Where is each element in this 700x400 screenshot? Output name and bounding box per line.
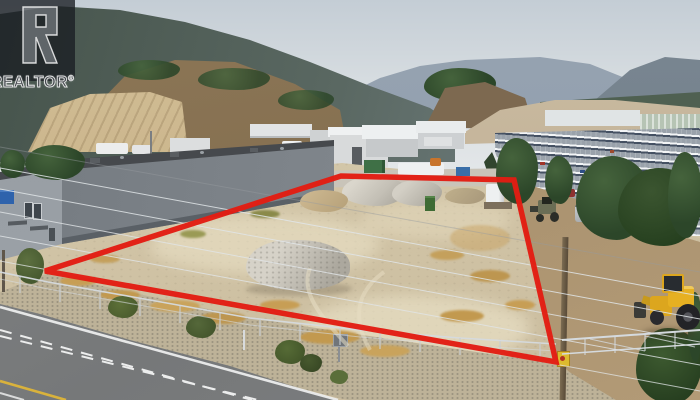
rooftop-hvac-unit (90, 158, 100, 163)
parked-car-red (610, 150, 614, 153)
rooftop-hvac-unit (250, 148, 258, 152)
dry-grass (300, 330, 360, 344)
registered-trademark-symbol: ® (68, 74, 74, 83)
loader-front-tire (650, 310, 664, 325)
utility-trailer (424, 137, 452, 146)
pole-warning-sign (557, 351, 570, 367)
dry-grass (440, 310, 484, 322)
dry-grass (90, 255, 120, 263)
greenhouse-rows (640, 114, 700, 130)
building-window (33, 203, 42, 220)
warehouse-roof-row (250, 124, 312, 138)
loader-cab (662, 274, 684, 293)
conifer-cluster (278, 90, 334, 110)
tree-edge (668, 152, 700, 238)
conifer-cluster (198, 68, 270, 90)
blue-bins (456, 167, 470, 176)
loader-rear-tire (676, 304, 700, 330)
warehouse-door (352, 147, 362, 166)
rv-trailer (132, 145, 152, 154)
tractor-wheel (536, 214, 544, 222)
building-window (24, 202, 33, 219)
aerial-property-photo: REALTOR® (0, 0, 700, 400)
realtor-r-icon (0, 0, 75, 81)
dry-grass (60, 276, 96, 286)
gravel-pile-texture (246, 240, 350, 290)
verge-bush (300, 354, 322, 372)
dry-grass (470, 270, 510, 282)
orange-machine (430, 158, 441, 166)
dirt-mound (300, 190, 348, 212)
tree (545, 156, 573, 204)
rv-trailer (96, 143, 128, 154)
loader-bucket (634, 302, 646, 318)
dirt-mound (445, 188, 485, 204)
dry-grass (150, 300, 200, 312)
porta-potty-green (425, 196, 435, 211)
tree-behind-building (0, 150, 25, 178)
dry-grass (505, 300, 535, 310)
parked-car-red (540, 162, 545, 165)
realtor-wordmark: REALTOR® (0, 74, 87, 92)
warehouse-right (416, 121, 466, 133)
warehouse-far-right (545, 110, 640, 126)
entry-door (49, 228, 55, 241)
warehouse-big-wall (366, 139, 418, 157)
sign-red-dot (560, 356, 565, 361)
rooftop-hvac-unit (170, 152, 179, 157)
flatbed-trailer (484, 202, 512, 209)
white-marker-post (243, 330, 245, 350)
verge-bush (186, 316, 216, 338)
dry-grass (430, 250, 464, 260)
realtor-watermark (0, 0, 75, 81)
dry-grass (450, 225, 510, 251)
road-sign-plate (333, 334, 348, 347)
green-container (364, 160, 385, 173)
roof-vent (120, 156, 124, 159)
tree-behind-building (25, 145, 85, 180)
realtor-brand-text: REALTOR (0, 74, 68, 91)
realtor-r-glyph (23, 7, 57, 63)
wheel-loader (634, 274, 700, 340)
roof-vent (280, 147, 284, 150)
tractor-wheel (550, 212, 559, 222)
conifer-cluster (118, 60, 180, 80)
utility-pole-left (2, 250, 5, 292)
verge-bush (330, 370, 348, 384)
building-sign-blue (0, 190, 14, 204)
warehouse-big-roof (362, 125, 420, 139)
roof-vent (200, 151, 204, 154)
dry-grass (260, 300, 300, 310)
tall-tree (496, 138, 538, 204)
dry-grass (360, 345, 410, 357)
green-weeds (180, 230, 206, 238)
shrub-front (16, 248, 44, 284)
green-weeds (250, 210, 280, 218)
verge-bush (108, 296, 138, 318)
